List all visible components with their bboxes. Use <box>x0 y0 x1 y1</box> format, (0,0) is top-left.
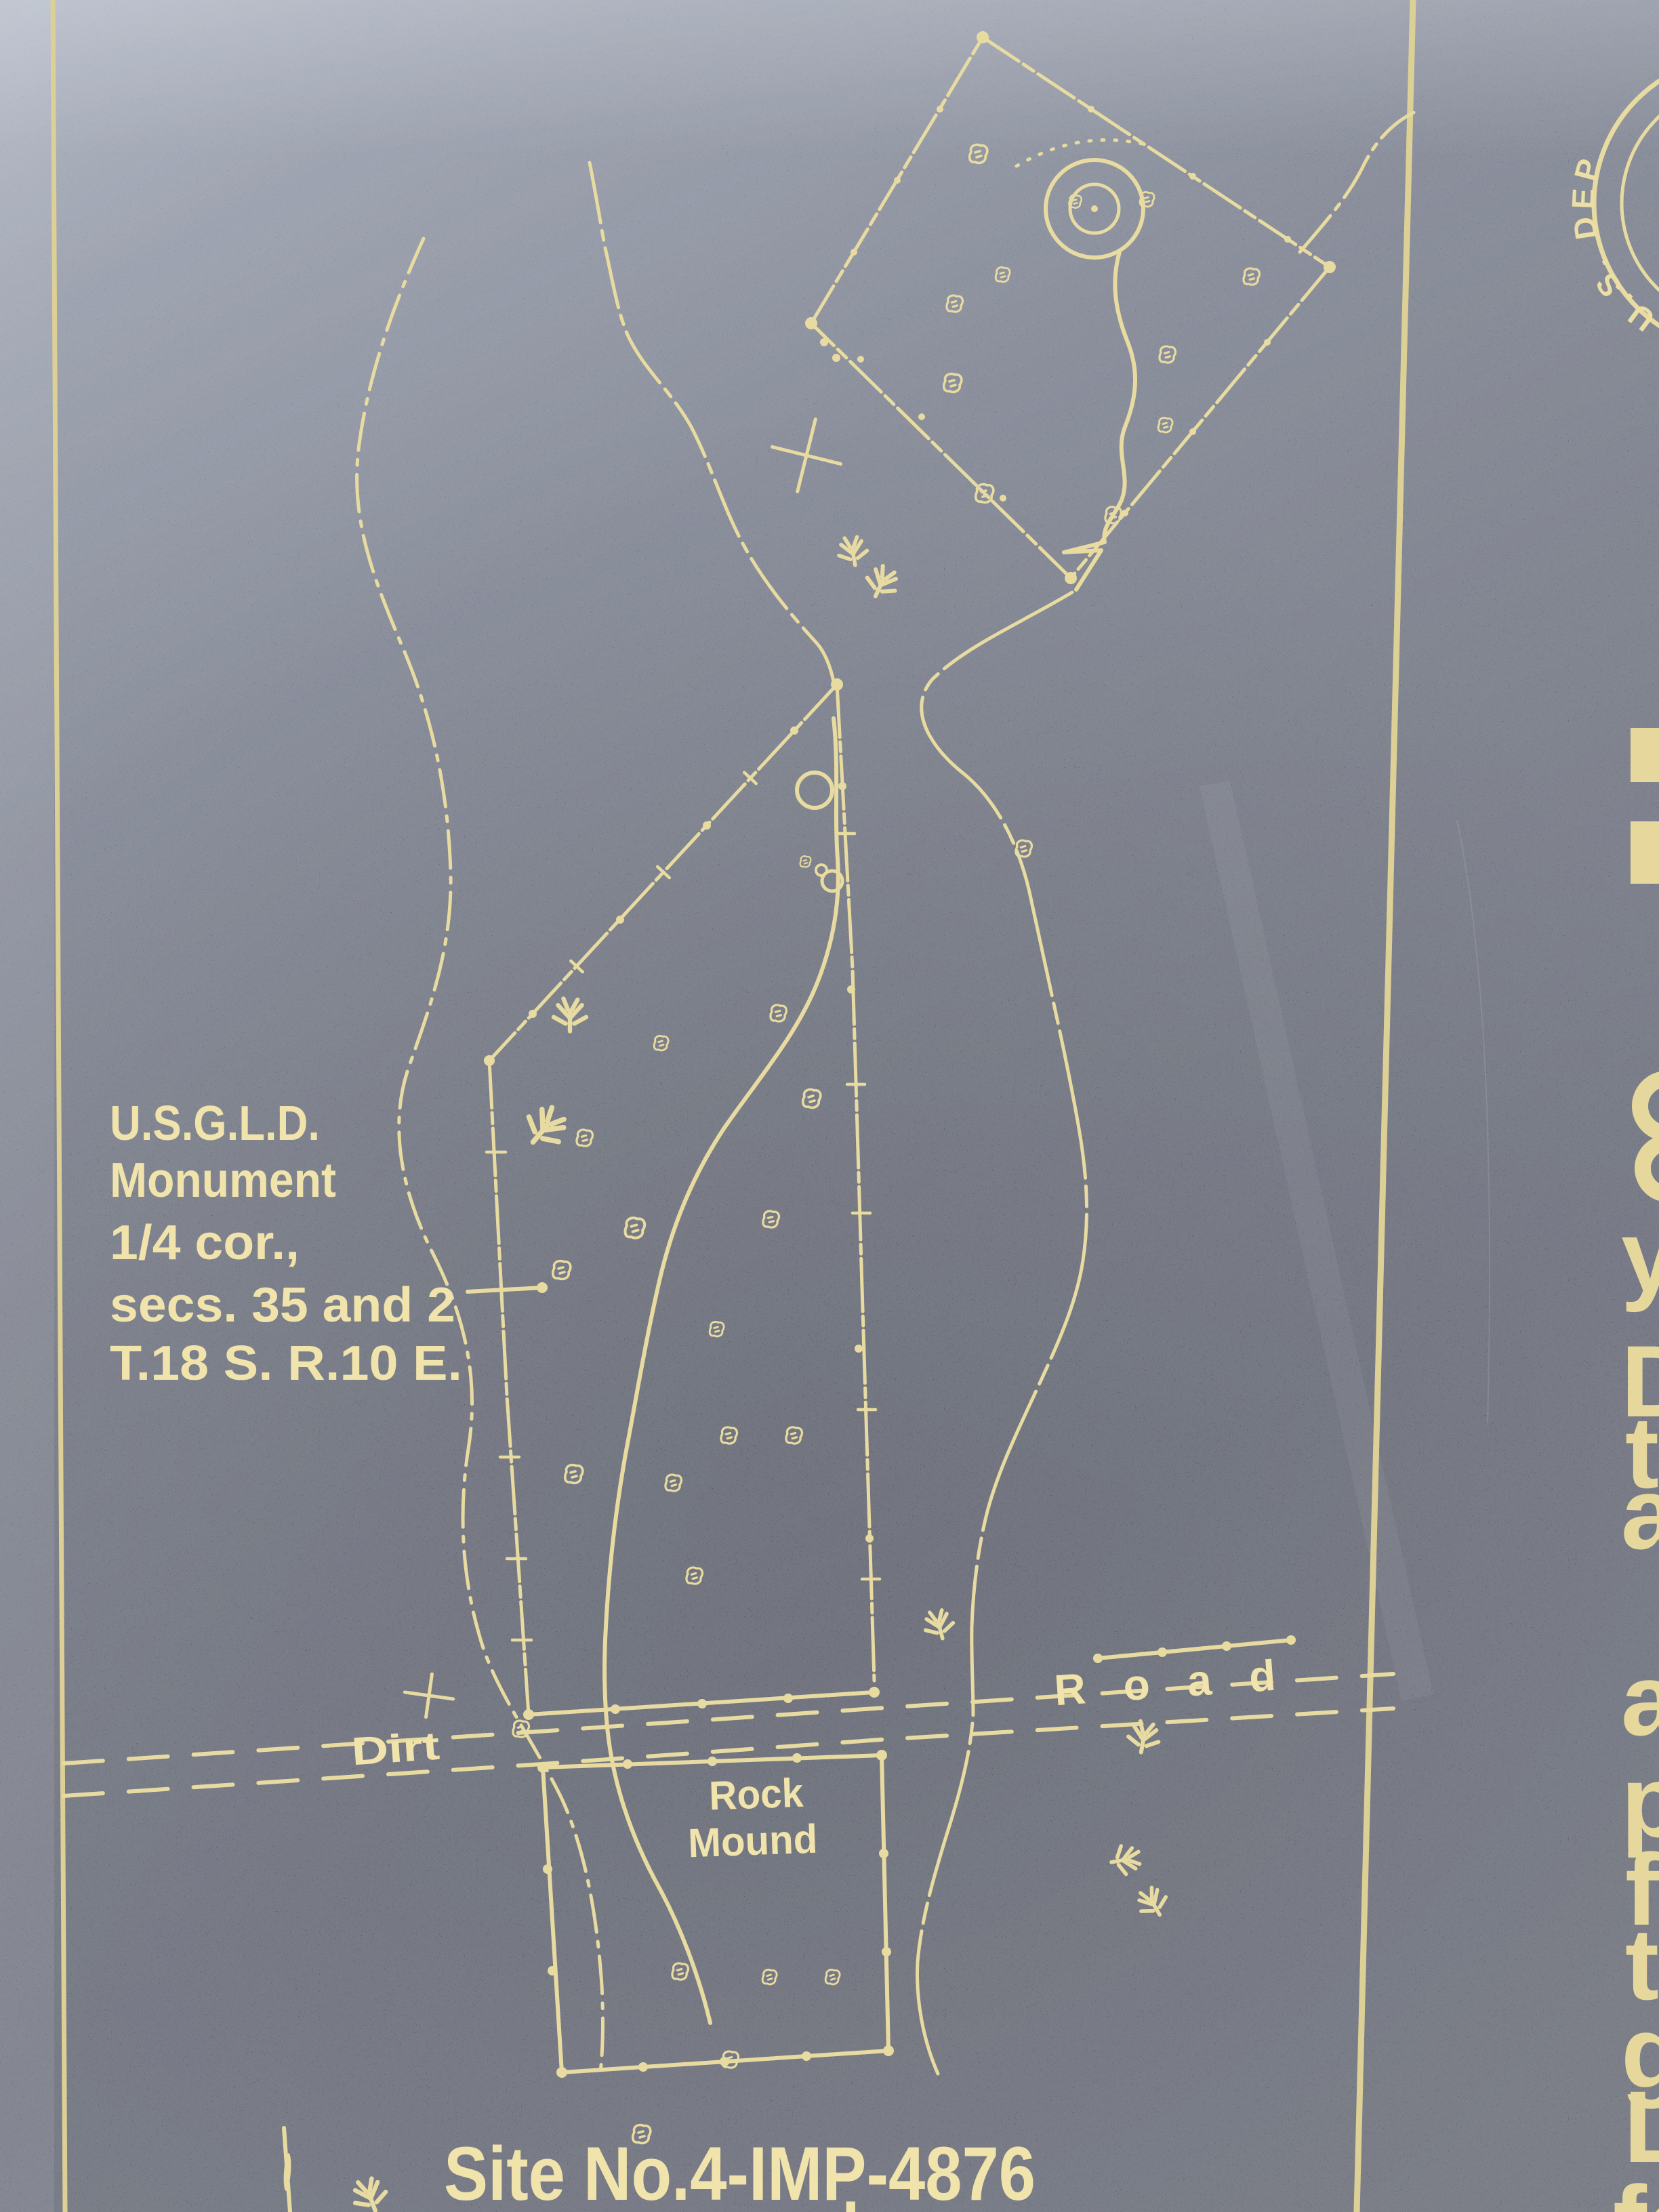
plaque-photo: U.S. DEP y D t a a p f t g L fo <box>0 0 1659 2212</box>
letter-fragment: a <box>1621 1643 1659 1757</box>
bottom-partial-text: key <box>842 2190 1023 2212</box>
letter-fragment: a <box>1621 1456 1659 1570</box>
rock-mound-label-line2: Mound <box>687 1816 818 1866</box>
monument-note-line: T.18 S. R.10 E. <box>110 1336 462 1391</box>
letter-fragment-bar <box>1631 821 1659 884</box>
letter-fragment-bar <box>1631 728 1659 782</box>
monument-note-line: 1/4 cor., <box>110 1216 300 1270</box>
monument-note-line: U.S.G.L.D. <box>110 1097 320 1151</box>
monument-note-line: Monument <box>110 1153 336 1208</box>
road-label-dirt: Dirt <box>350 1724 441 1774</box>
rock-mound-label-line1: Rock <box>708 1770 804 1819</box>
letter-fragment: y <box>1621 1199 1659 1313</box>
letter-fragment: fo <box>1613 2165 1659 2212</box>
site-map-drawing: U.S. DEP y D t a a p f t g L fo <box>0 0 1659 2212</box>
monument-note-line: secs. 35 and 2 <box>110 1278 455 1332</box>
